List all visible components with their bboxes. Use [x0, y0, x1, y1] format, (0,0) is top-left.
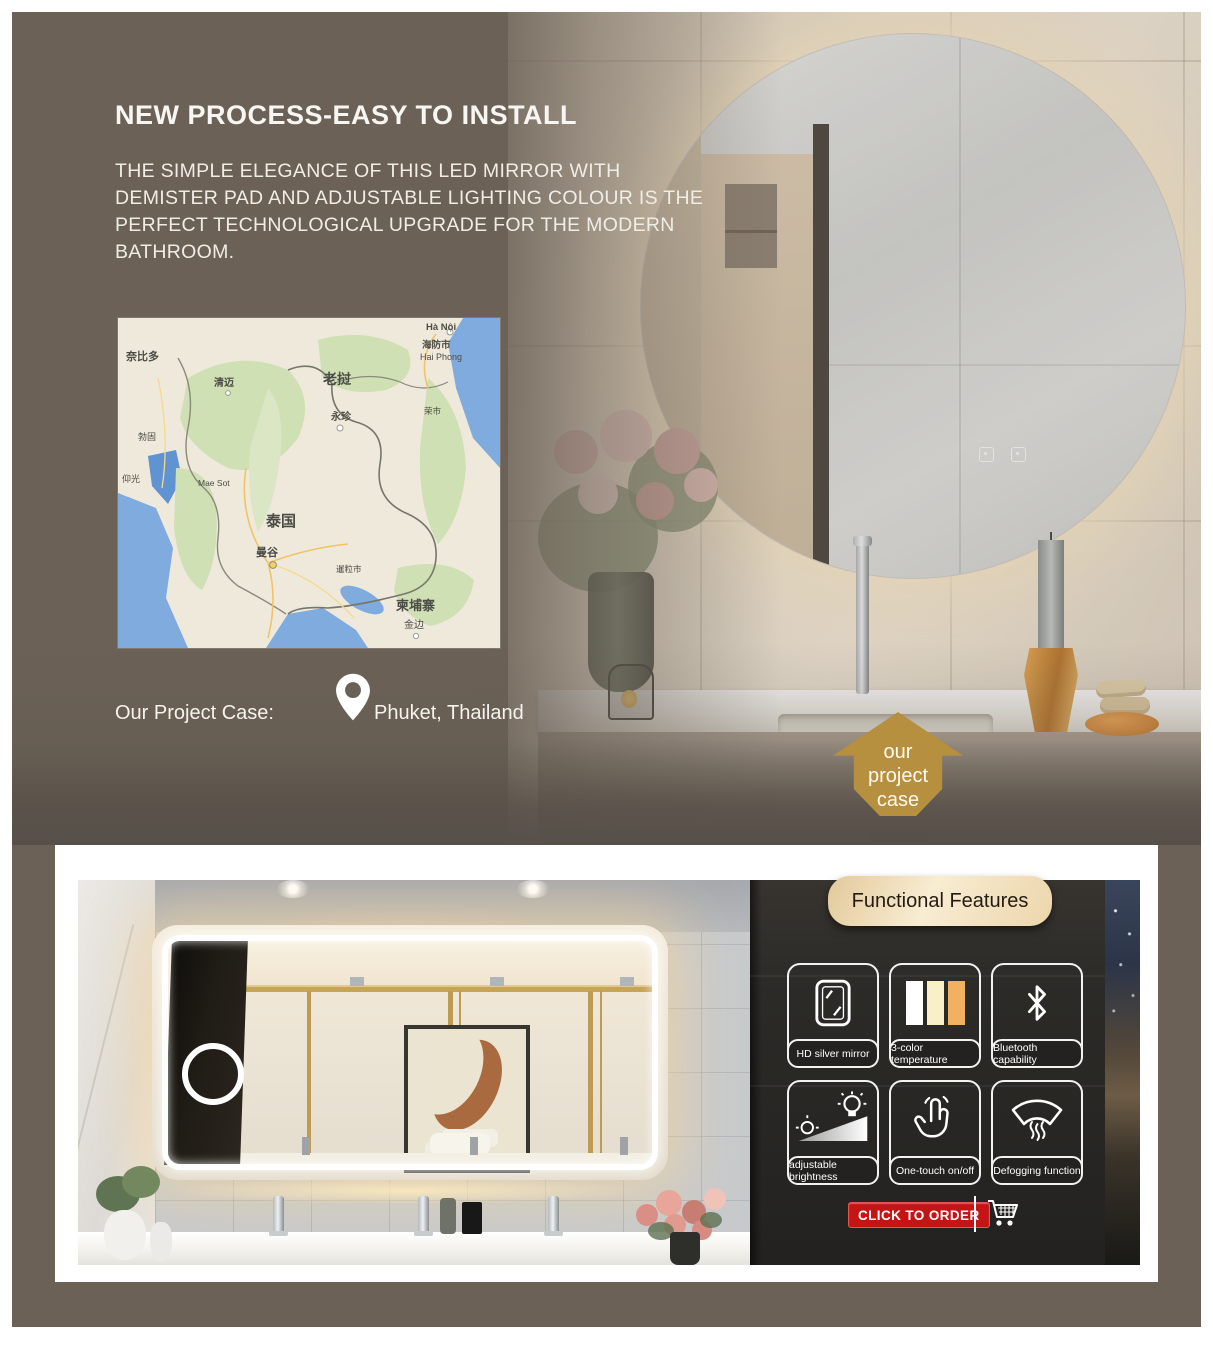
map-label: 荣市 — [424, 406, 442, 416]
rose — [704, 1188, 726, 1210]
map-city-marker — [413, 633, 418, 638]
page-description: THE SIMPLE ELEGANCE OF THIS LED MIRROR W… — [115, 158, 727, 266]
hd-mirror-icon — [789, 965, 877, 1041]
badge-line: project — [868, 764, 928, 788]
features-header: Functional Features — [828, 876, 1052, 926]
feature-label: One-touch on/off — [889, 1156, 981, 1185]
bluetooth-icon — [993, 965, 1081, 1041]
badge-line: our — [884, 740, 913, 764]
map-city-marker — [270, 562, 277, 569]
rose-vase — [670, 1232, 700, 1265]
map-label: 柬埔寨 — [396, 598, 435, 613]
order-divider — [974, 1196, 976, 1232]
swatch-white — [906, 981, 923, 1025]
under-mirror-glow — [168, 1178, 648, 1204]
feature-label: Defogging function — [991, 1156, 1083, 1185]
panel-seam — [750, 880, 762, 1265]
map-city-marker — [226, 391, 231, 396]
project-case-card: Functional Features HD silver mirror — [55, 845, 1158, 1282]
feature-card-3-color-temperature: 3-color temperature — [889, 963, 981, 1068]
night-photo-strip — [1105, 880, 1140, 1265]
defogging-icon — [993, 1082, 1081, 1158]
cart-icon[interactable] — [986, 1196, 1020, 1230]
feature-card-bluetooth: Bluetooth capability — [991, 963, 1083, 1068]
swatch-warm-white — [927, 981, 944, 1025]
feature-card-defogging: Defogging function — [991, 1080, 1083, 1185]
map-label: 金边 — [404, 618, 424, 631]
case-photo-collage: Functional Features HD silver mirror — [78, 880, 1140, 1265]
leaves — [700, 1212, 722, 1228]
faucet — [273, 1196, 284, 1234]
rose — [656, 1190, 682, 1216]
click-to-order-button[interactable]: CLICK TO ORDER — [848, 1202, 990, 1228]
bathroom-photo-rect-mirror — [78, 880, 750, 1265]
location-pin-icon — [335, 672, 371, 722]
one-touch-icon — [891, 1082, 979, 1158]
plant-pot — [104, 1210, 146, 1260]
bottom-fade-overlay — [12, 642, 1201, 845]
led-light-strip — [162, 935, 658, 1170]
rectangular-led-mirror — [152, 925, 668, 1180]
map-label: 海防市 — [422, 339, 451, 351]
lotion-bottle — [440, 1198, 456, 1234]
map-label: 泰国 — [265, 512, 296, 530]
map-label: 仰光 — [122, 473, 140, 484]
map-label: Hai Phong — [420, 352, 462, 362]
map-label: 勃固 — [138, 431, 156, 442]
faucet — [418, 1196, 429, 1234]
faucet — [548, 1196, 559, 1234]
ceiling-spotlight — [276, 880, 310, 898]
map-label: 老挝 — [323, 371, 352, 387]
ceiling-spotlight — [516, 880, 550, 898]
map-label: 永珍 — [330, 410, 352, 423]
map-city-marker — [337, 425, 343, 431]
project-case-location: Phuket, Thailand — [374, 702, 524, 725]
hero-section: NEW PROCESS-EASY TO INSTALL THE SIMPLE E… — [12, 12, 1201, 1327]
badge-line: case — [877, 788, 919, 812]
project-location-map: 奈比多 勃固 仰光 清迈 老挝 永珍 荣市 Hà Nội 海防市 Hai Pho… — [118, 318, 500, 648]
project-case-label: Our Project Case: — [115, 702, 274, 725]
page-canvas: NEW PROCESS-EASY TO INSTALL THE SIMPLE E… — [0, 0, 1213, 1354]
feature-label: 3-color temperature — [889, 1039, 981, 1068]
adjustable-brightness-icon — [789, 1082, 877, 1158]
toothbrush-cup — [462, 1202, 482, 1234]
map-label: 奈比多 — [125, 349, 159, 363]
map-label: 清迈 — [214, 376, 234, 389]
feature-card-adjustable-brightness: adjustable brightness — [787, 1080, 879, 1185]
feature-label: Bluetooth capability — [991, 1039, 1083, 1068]
color-temperature-icon — [891, 965, 979, 1041]
map-label: Mae Sot — [198, 478, 230, 488]
map-label: Hà Nội — [426, 322, 456, 333]
feature-card-one-touch: One-touch on/off — [889, 1080, 981, 1185]
feature-label: HD silver mirror — [787, 1039, 879, 1068]
bud-vase — [150, 1222, 172, 1262]
feature-label: adjustable brightness — [787, 1156, 879, 1185]
swatch-warm-orange — [948, 981, 965, 1025]
map-label: 曼谷 — [256, 545, 279, 559]
map-label: 暹粒市 — [336, 564, 362, 574]
potted-plant — [122, 1166, 160, 1198]
page-title: NEW PROCESS-EASY TO INSTALL — [115, 100, 577, 131]
feature-card-hd-silver-mirror: HD silver mirror — [787, 963, 879, 1068]
